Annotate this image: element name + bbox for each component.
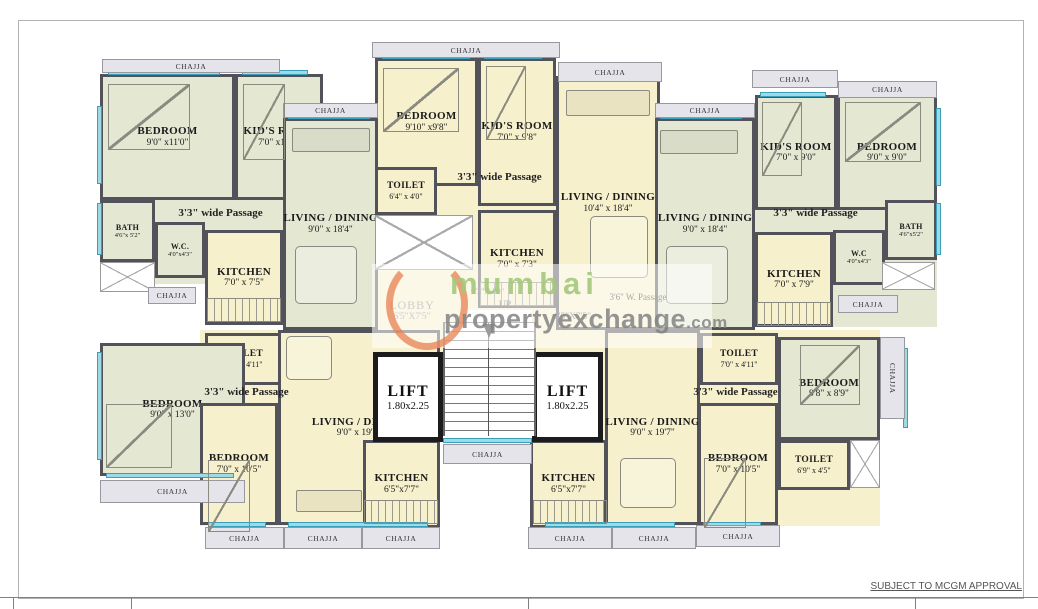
sofa-icon	[292, 128, 370, 152]
chajja-label: CHAJJA	[723, 532, 754, 541]
wc-top-left: W.C.4'0"x4'3"	[155, 222, 205, 278]
chajja-label: CHAJJA	[451, 46, 482, 55]
living-dining-top-mid-name: LIVING / DINING	[561, 191, 655, 204]
bed-icon	[208, 460, 250, 532]
chajja-band: CHAJJA	[612, 527, 696, 549]
passage-label: 3'3" wide Passage	[753, 207, 878, 221]
chajja-band: CHAJJA	[148, 287, 196, 304]
living-dining-top-left-dims: 9'0" x 18'4"	[308, 225, 352, 236]
wc-top-right-name: W.C	[851, 249, 867, 258]
chajja-label: CHAJJA	[308, 534, 339, 543]
chajja-label: CHAJJA	[639, 534, 670, 543]
window-strip	[97, 352, 102, 460]
counter-icon	[533, 500, 607, 524]
living-dining-top-left-name: LIVING / DINING	[283, 212, 377, 225]
kitchen-bottom-left-name: KITCHEN	[374, 472, 428, 485]
kitchen-top-left-dims: 7'0" x 7'5"	[224, 278, 264, 289]
bath-top-right: BATH4'6"x5'2"	[885, 200, 937, 260]
sofa-icon	[566, 90, 650, 116]
title-block-tick	[13, 597, 14, 609]
chajja-band: CHAJJA	[838, 81, 937, 98]
lift-dims: 1.80x2.25	[547, 401, 589, 412]
kitchen-top-right-dims: 7'0" x 7'9"	[774, 280, 814, 291]
kitchen-top-left-name: KITCHEN	[217, 266, 271, 279]
bath-top-left: BATH4'6"x 5'2"	[100, 200, 155, 262]
toilet-top-mid-name: TOILET	[387, 181, 425, 192]
toilet-bottom-right-name: TOILET	[720, 349, 758, 360]
shaft-void	[850, 440, 880, 488]
title-block-tick	[915, 597, 916, 609]
chajja-label: CHAJJA	[853, 300, 884, 309]
chajja-band: CHAJJA	[880, 337, 905, 419]
wc-top-right-dims: 4'0"x4'3"	[847, 258, 871, 265]
window-strip	[443, 438, 532, 443]
approval-note: SUBJECT TO MCGM APPROVAL	[760, 581, 1022, 592]
living-dining-bottom-right-dims: 9'0" x 19'7"	[630, 428, 674, 439]
chajja-band: CHAJJA	[838, 295, 898, 313]
wc-top-left-dims: 4'0"x4'3"	[168, 251, 192, 258]
toilet-top-mid: TOILET6'4" x 4'0"	[375, 167, 437, 215]
chajja-band: CHAJJA	[528, 527, 612, 549]
passage-label: 3'3" wide Passage	[437, 171, 562, 185]
chajja-band: CHAJJA	[283, 103, 378, 118]
title-block-tick	[131, 597, 132, 609]
bed-icon	[108, 84, 190, 150]
bath-top-left-name: BATH	[116, 223, 139, 232]
table-icon	[620, 458, 676, 508]
chajja-label: CHAJJA	[595, 68, 626, 77]
table-icon	[286, 336, 332, 380]
counter-icon	[364, 500, 438, 524]
shaft-void	[882, 262, 935, 290]
chajja-band: CHAJJA	[655, 103, 755, 118]
counter-icon	[757, 302, 831, 326]
sofa-icon	[660, 130, 738, 154]
chajja-label: CHAJJA	[872, 85, 903, 94]
bed-icon	[800, 345, 860, 405]
bed-icon	[383, 68, 459, 132]
bed-icon	[243, 84, 285, 160]
chajja-label: CHAJJA	[780, 75, 811, 84]
watermark-word-propertyexchange-text: propertyexchange	[444, 304, 686, 334]
living-dining-top-right-name: LIVING / DINING	[658, 212, 752, 225]
chajja-band: CHAJJA	[362, 527, 440, 549]
chajja-label: CHAJJA	[157, 291, 188, 300]
shaft-void	[100, 262, 155, 292]
chajja-label: CHAJJA	[315, 106, 346, 115]
living-dining-top-right-dims: 9'0" x 18'4"	[683, 225, 727, 236]
chajja-label: CHAJJA	[386, 534, 417, 543]
kitchen-top-mid-name: KITCHEN	[490, 247, 544, 260]
lift-left: LIFT1.80x2.25	[373, 352, 443, 442]
counter-icon	[207, 298, 281, 322]
window-strip	[97, 106, 102, 184]
kitchen-bottom-left-dims: 6'5"x7'7"	[384, 485, 419, 496]
passage-label: 3'3" wide Passage	[184, 386, 309, 400]
passage-label: 3'3" wide Passage	[158, 207, 283, 221]
bed-icon	[486, 66, 526, 140]
sofa-icon	[296, 490, 362, 512]
chajja-label: CHAJJA	[472, 450, 503, 459]
toilet-top-mid-dims: 6'4" x 4'0"	[389, 192, 422, 201]
passage-label: 3'3" wide Passage	[673, 386, 798, 400]
wc-top-right: W.C4'0"x4'3"	[833, 230, 885, 285]
chajja-label: CHAJJA	[176, 62, 207, 71]
living-dining-bottom-right-name: LIVING / DINING	[605, 416, 699, 429]
kitchen-top-right-name: KITCHEN	[767, 268, 821, 281]
kitchen-bottom-right-dims: 6'5"x7'7"	[551, 485, 586, 496]
watermark-dotcom: .com	[686, 313, 728, 332]
chajja-label: CHAJJA	[229, 534, 260, 543]
bed-icon	[845, 102, 921, 162]
title-block-line	[0, 597, 1038, 598]
watermark-word-propertyexchange: propertyexchange.com	[444, 304, 728, 335]
toilet2-bottom-right-dims: 6'9" x 4'5"	[797, 466, 830, 475]
window-strip	[936, 203, 941, 255]
chajja-band: CHAJJA	[102, 59, 280, 73]
chajja-band: CHAJJA	[558, 62, 662, 82]
bath-top-right-dims: 4'6"x5'2"	[899, 231, 923, 238]
bed-icon	[704, 458, 746, 528]
chajja-band: CHAJJA	[284, 527, 362, 549]
lift-label: LIFT	[387, 383, 428, 401]
bed-icon	[762, 102, 802, 176]
chajja-label: CHAJJA	[157, 487, 188, 496]
floor-plan: BEDROOM9'0" x11'0"KID'S ROOM7'0" x11'0"L…	[0, 0, 1038, 609]
chajja-label: CHAJJA	[555, 534, 586, 543]
table-icon	[295, 246, 357, 304]
window-strip	[936, 108, 941, 186]
chajja-band: CHAJJA	[372, 42, 560, 58]
chajja-label: CHAJJA	[690, 106, 721, 115]
window-strip	[97, 203, 102, 255]
living-dining-top-mid-dims: 10'4" x 18'4"	[583, 204, 632, 215]
toilet2-bottom-right: TOILET6'9" x 4'5"	[778, 440, 850, 490]
bed-icon	[106, 404, 172, 468]
chajja-band: CHAJJA	[696, 525, 780, 547]
chajja-band: CHAJJA	[752, 70, 838, 88]
kitchen-bottom-right-name: KITCHEN	[541, 472, 595, 485]
watermark-word-mumbai: mumbai	[450, 266, 599, 302]
wc-top-left-name: W.C.	[171, 242, 189, 251]
lift-label: LIFT	[547, 383, 588, 401]
window-strip	[760, 92, 826, 97]
bath-top-left-dims: 4'6"x 5'2"	[115, 232, 141, 239]
lift-dims: 1.80x2.25	[387, 401, 429, 412]
chajja-band: CHAJJA	[443, 444, 532, 464]
chajja-label: CHAJJA	[888, 363, 897, 394]
title-block-tick	[528, 597, 529, 609]
lift-right: LIFT1.80x2.25	[532, 352, 603, 442]
bath-top-right-name: BATH	[899, 222, 922, 231]
toilet-bottom-right-dims: 7'0" x 4'11"	[720, 360, 757, 369]
toilet2-bottom-right-name: TOILET	[795, 455, 833, 466]
watermark: mumbai propertyexchange.com	[372, 264, 712, 348]
